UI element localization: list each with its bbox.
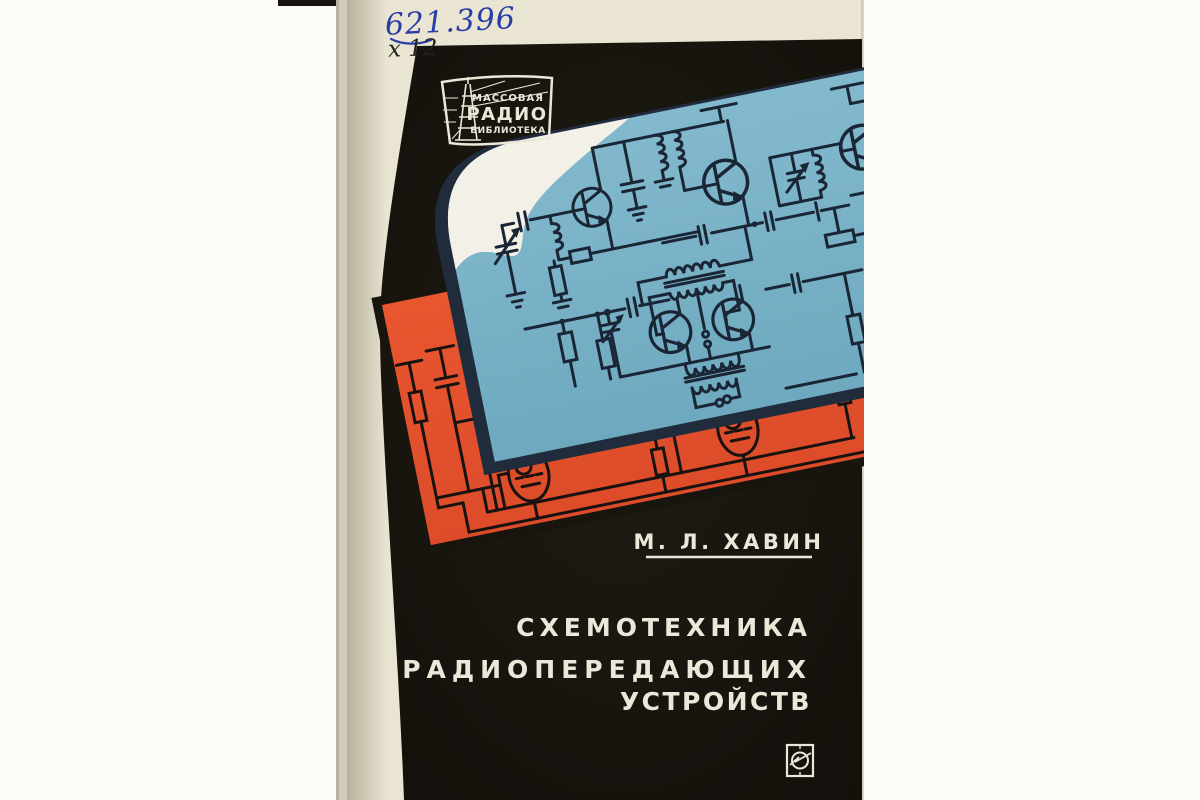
- title-line-3: УСТРОЙСТВ: [620, 687, 812, 716]
- author-name: М. Л. ХАВИН: [633, 530, 824, 554]
- spine-crease-shadow: [347, 0, 387, 800]
- page-block-edge: [339, 0, 347, 800]
- badge-line-2: РАДИО: [466, 104, 547, 125]
- badge-line-1: МАССОВАЯ: [472, 93, 544, 104]
- badge-line-3: БИБЛИОТЕКА: [470, 126, 546, 136]
- spine-edge-line: [336, 0, 339, 800]
- title-line-2: РАДИОПЕРЕДАЮЩИХ: [402, 655, 812, 684]
- cover-artwork: МАССОВАЯ РАДИО БИБЛИОТЕКА М. Л. ХАВИН СХ…: [0, 0, 1200, 800]
- book-cover-photo: МАССОВАЯ РАДИО БИБЛИОТЕКА М. Л. ХАВИН СХ…: [0, 0, 1200, 800]
- photo-edge-artifact: [278, 0, 344, 6]
- title-line-1: СХЕМОТЕХНИКА: [516, 613, 812, 642]
- handwritten-shelf-code: х 12: [388, 35, 438, 63]
